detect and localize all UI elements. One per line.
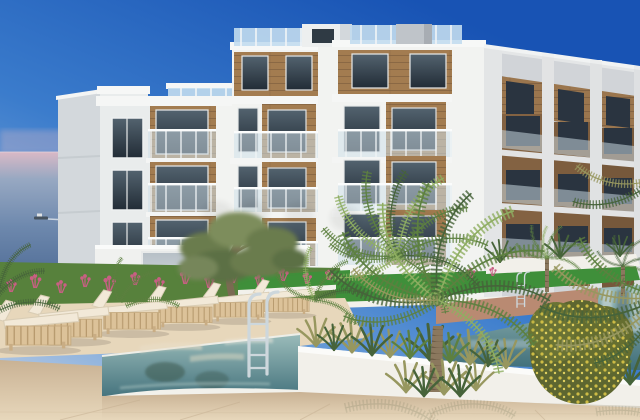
property-render-photo: 3D architectural rendering of a modern w… <box>0 0 640 420</box>
render-canvas <box>0 0 640 420</box>
left-tower-windows <box>112 118 143 262</box>
